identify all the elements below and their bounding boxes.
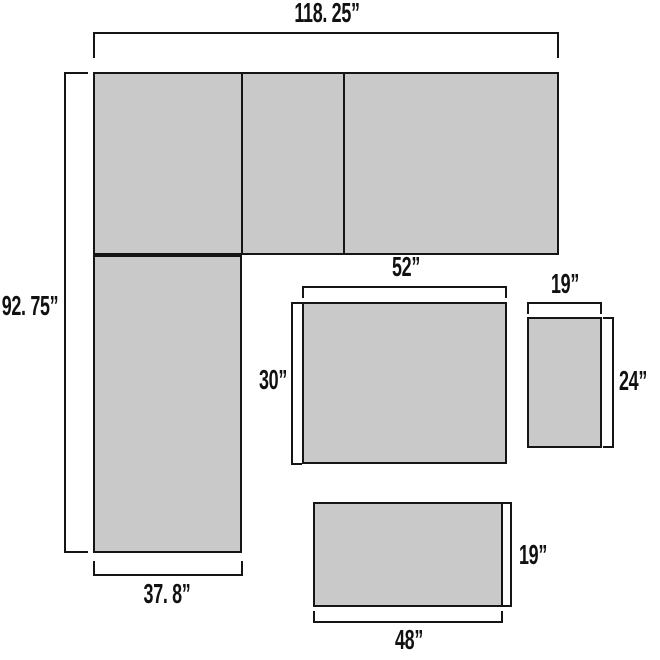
dim-chaise-width-tick-left xyxy=(93,561,95,576)
dim-side-table-depth-line xyxy=(612,317,614,448)
section-divider-left xyxy=(241,74,243,253)
dim-bench-depth-tick-bottom xyxy=(501,605,512,607)
dim-total-depth-label: 92. 75” xyxy=(2,290,59,322)
dim-total-width-tick-left xyxy=(93,32,95,58)
dim-chaise-width-label: 37. 8” xyxy=(144,578,191,610)
bench-table xyxy=(313,502,503,607)
side-table xyxy=(527,317,602,448)
dim-side-table-width-line xyxy=(527,302,602,304)
dim-bench-depth-tick-top xyxy=(501,502,512,504)
section-divider-right xyxy=(343,74,345,253)
dim-coffee-table-width-tick-left xyxy=(302,286,304,298)
dim-side-table-width-label: 19” xyxy=(551,268,579,300)
dim-total-width-label: 118. 25” xyxy=(294,0,359,29)
dim-coffee-table-width-label: 52” xyxy=(392,251,420,283)
dim-side-table-depth-tick-bottom xyxy=(603,446,614,448)
dim-total-width-tick-right xyxy=(557,32,559,58)
dim-side-table-width-tick-right xyxy=(600,302,602,314)
dim-bench-width-label: 48” xyxy=(395,624,423,656)
dim-coffee-table-depth-label: 30” xyxy=(259,364,287,396)
dim-chaise-width-tick-right xyxy=(241,561,243,576)
dim-coffee-table-depth-tick-bottom xyxy=(291,463,302,465)
dim-total-width-line xyxy=(93,32,559,34)
dim-side-table-width-tick-left xyxy=(527,302,529,314)
dim-bench-width-tick-left xyxy=(313,611,315,623)
dim-chaise-width-line xyxy=(93,574,243,576)
dim-bench-width-line xyxy=(313,621,503,623)
furniture-dimension-diagram: 118. 25” 92. 75” 37. 8” 52” 30” 19” xyxy=(0,0,660,660)
dim-side-table-depth-label: 24” xyxy=(619,365,647,397)
dim-total-depth-tick-top xyxy=(64,72,88,74)
dim-bench-depth-line xyxy=(510,502,512,607)
dim-bench-width-tick-right xyxy=(501,611,503,623)
dim-coffee-table-depth-line xyxy=(291,302,293,465)
dim-coffee-table-width-line xyxy=(302,286,507,288)
dim-coffee-table-depth-tick-top xyxy=(291,302,302,304)
sectional-chaise-column xyxy=(93,255,242,553)
dim-bench-depth-label: 19” xyxy=(519,539,547,571)
dim-total-depth-line xyxy=(64,72,66,553)
dim-coffee-table-width-tick-right xyxy=(505,286,507,298)
dim-side-table-depth-tick-top xyxy=(603,317,614,319)
dim-total-depth-tick-bottom xyxy=(64,551,88,553)
sectional-back-row xyxy=(93,72,559,255)
coffee-table xyxy=(302,302,507,464)
